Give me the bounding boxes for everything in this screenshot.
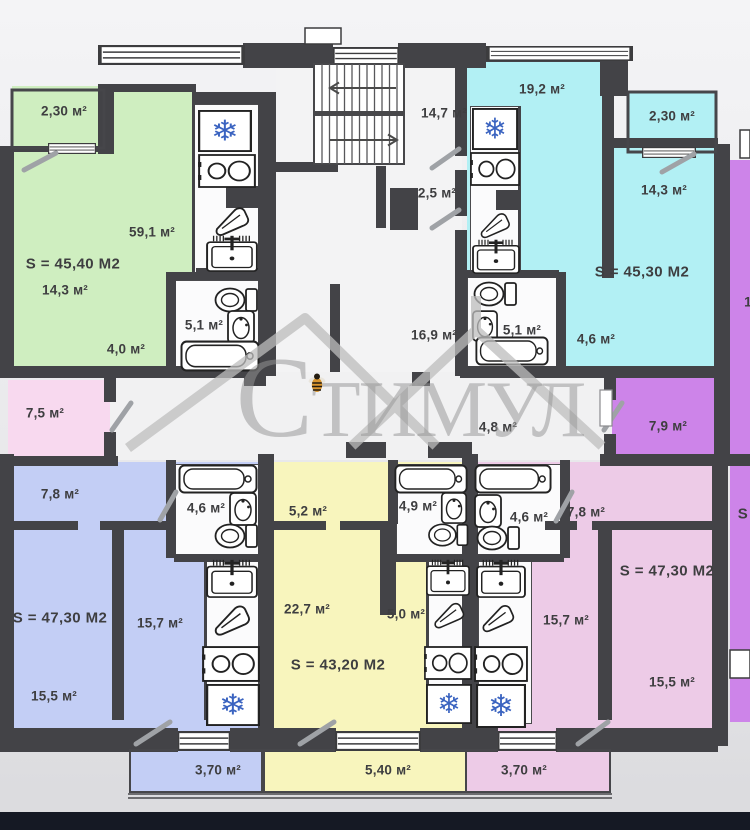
area-label-pink-balcony: 3,70 м²	[501, 763, 547, 778]
area-label-green-hall: 4,0 м²	[107, 342, 145, 357]
area-label-left-room: 7,5 м²	[26, 406, 64, 421]
area-label-green-bath: 5,1 м²	[185, 318, 223, 333]
area-label-yellow-bath: 4,9 м²	[399, 499, 437, 514]
total-label-blue: S = 47,30 М2	[13, 610, 107, 627]
total-label-cyan: S = 45,30 М2	[595, 264, 689, 281]
area-label-cyan-hall: 4,6 м²	[577, 332, 615, 347]
area-label-corridor: 16,9 м²	[411, 328, 457, 343]
area-label-entry-hall: 4,8 м²	[479, 420, 517, 435]
area-label-blue-room: 7,8 м²	[41, 487, 79, 502]
floor-plan-screenshot: ❄	[0, 0, 750, 830]
area-label-green-balcony: 2,30 м²	[41, 104, 87, 119]
area-label-pink-bath: 4,6 м²	[510, 510, 548, 525]
area-label-blue-bedroom: 15,5 м²	[31, 689, 77, 704]
area-label-pink-bedroom: 15,5 м²	[649, 675, 695, 690]
total-label-right-cut: S	[738, 506, 748, 523]
strip-pink-left-neighbor	[0, 160, 8, 372]
page-bottom-bar	[0, 812, 750, 830]
area-label-green-living: 59,1 м²	[129, 225, 175, 240]
area-label-yellow-kitchen: 5,0 м²	[387, 607, 425, 622]
area-label-blue-bath: 4,6 м²	[187, 501, 225, 516]
total-label-yellow: S = 43,20 М2	[291, 657, 385, 674]
area-label-yellow-hall: 5,2 м²	[289, 504, 327, 519]
room-right-purple	[612, 376, 718, 458]
top-notch	[305, 28, 341, 44]
area-label-pink-kitchen: 15,7 м²	[543, 613, 589, 628]
area-label-cyan-bath: 5,1 м²	[503, 323, 541, 338]
room-yellow-kitchen-col	[428, 558, 470, 724]
area-label-blue-balcony: 3,70 м²	[195, 763, 241, 778]
room-mid-corridor	[108, 372, 648, 460]
area-label-yellow-balcony: 5,40 м²	[365, 763, 411, 778]
area-label-right-room: 7,9 м²	[649, 419, 687, 434]
area-label-blue-kitchen: 15,7 м²	[137, 616, 183, 631]
area-label-cyan-bedroom: 14,3 м²	[641, 183, 687, 198]
area-label-lift: 2,5 м²	[418, 186, 456, 201]
area-label-right-cut: 1	[744, 295, 750, 310]
area-label-cyan-kitchen-living: 19,2 м²	[519, 82, 565, 97]
total-label-pink: S = 47,30 М2	[620, 563, 714, 580]
room-blue-kitchen-col	[206, 558, 262, 724]
room-pink-kitchen-col	[478, 558, 532, 724]
room-cyan-hall	[560, 276, 716, 372]
area-label-yellow-living: 22,7 м²	[284, 602, 330, 617]
strip-purple-right-neighbor	[730, 160, 750, 722]
right-edge-window	[740, 130, 750, 158]
total-label-green: S = 45,40 М2	[26, 256, 120, 273]
room-cyan-kitchen	[470, 106, 520, 276]
area-label-green-bedroom: 14,3 м²	[42, 283, 88, 298]
room-green-kitchen	[194, 104, 260, 276]
area-label-pink-room: 7,8 м²	[567, 505, 605, 520]
area-label-stair-hall: 14,7 м²	[421, 106, 467, 121]
area-label-cyan-balcony: 2,30 м²	[649, 109, 695, 124]
